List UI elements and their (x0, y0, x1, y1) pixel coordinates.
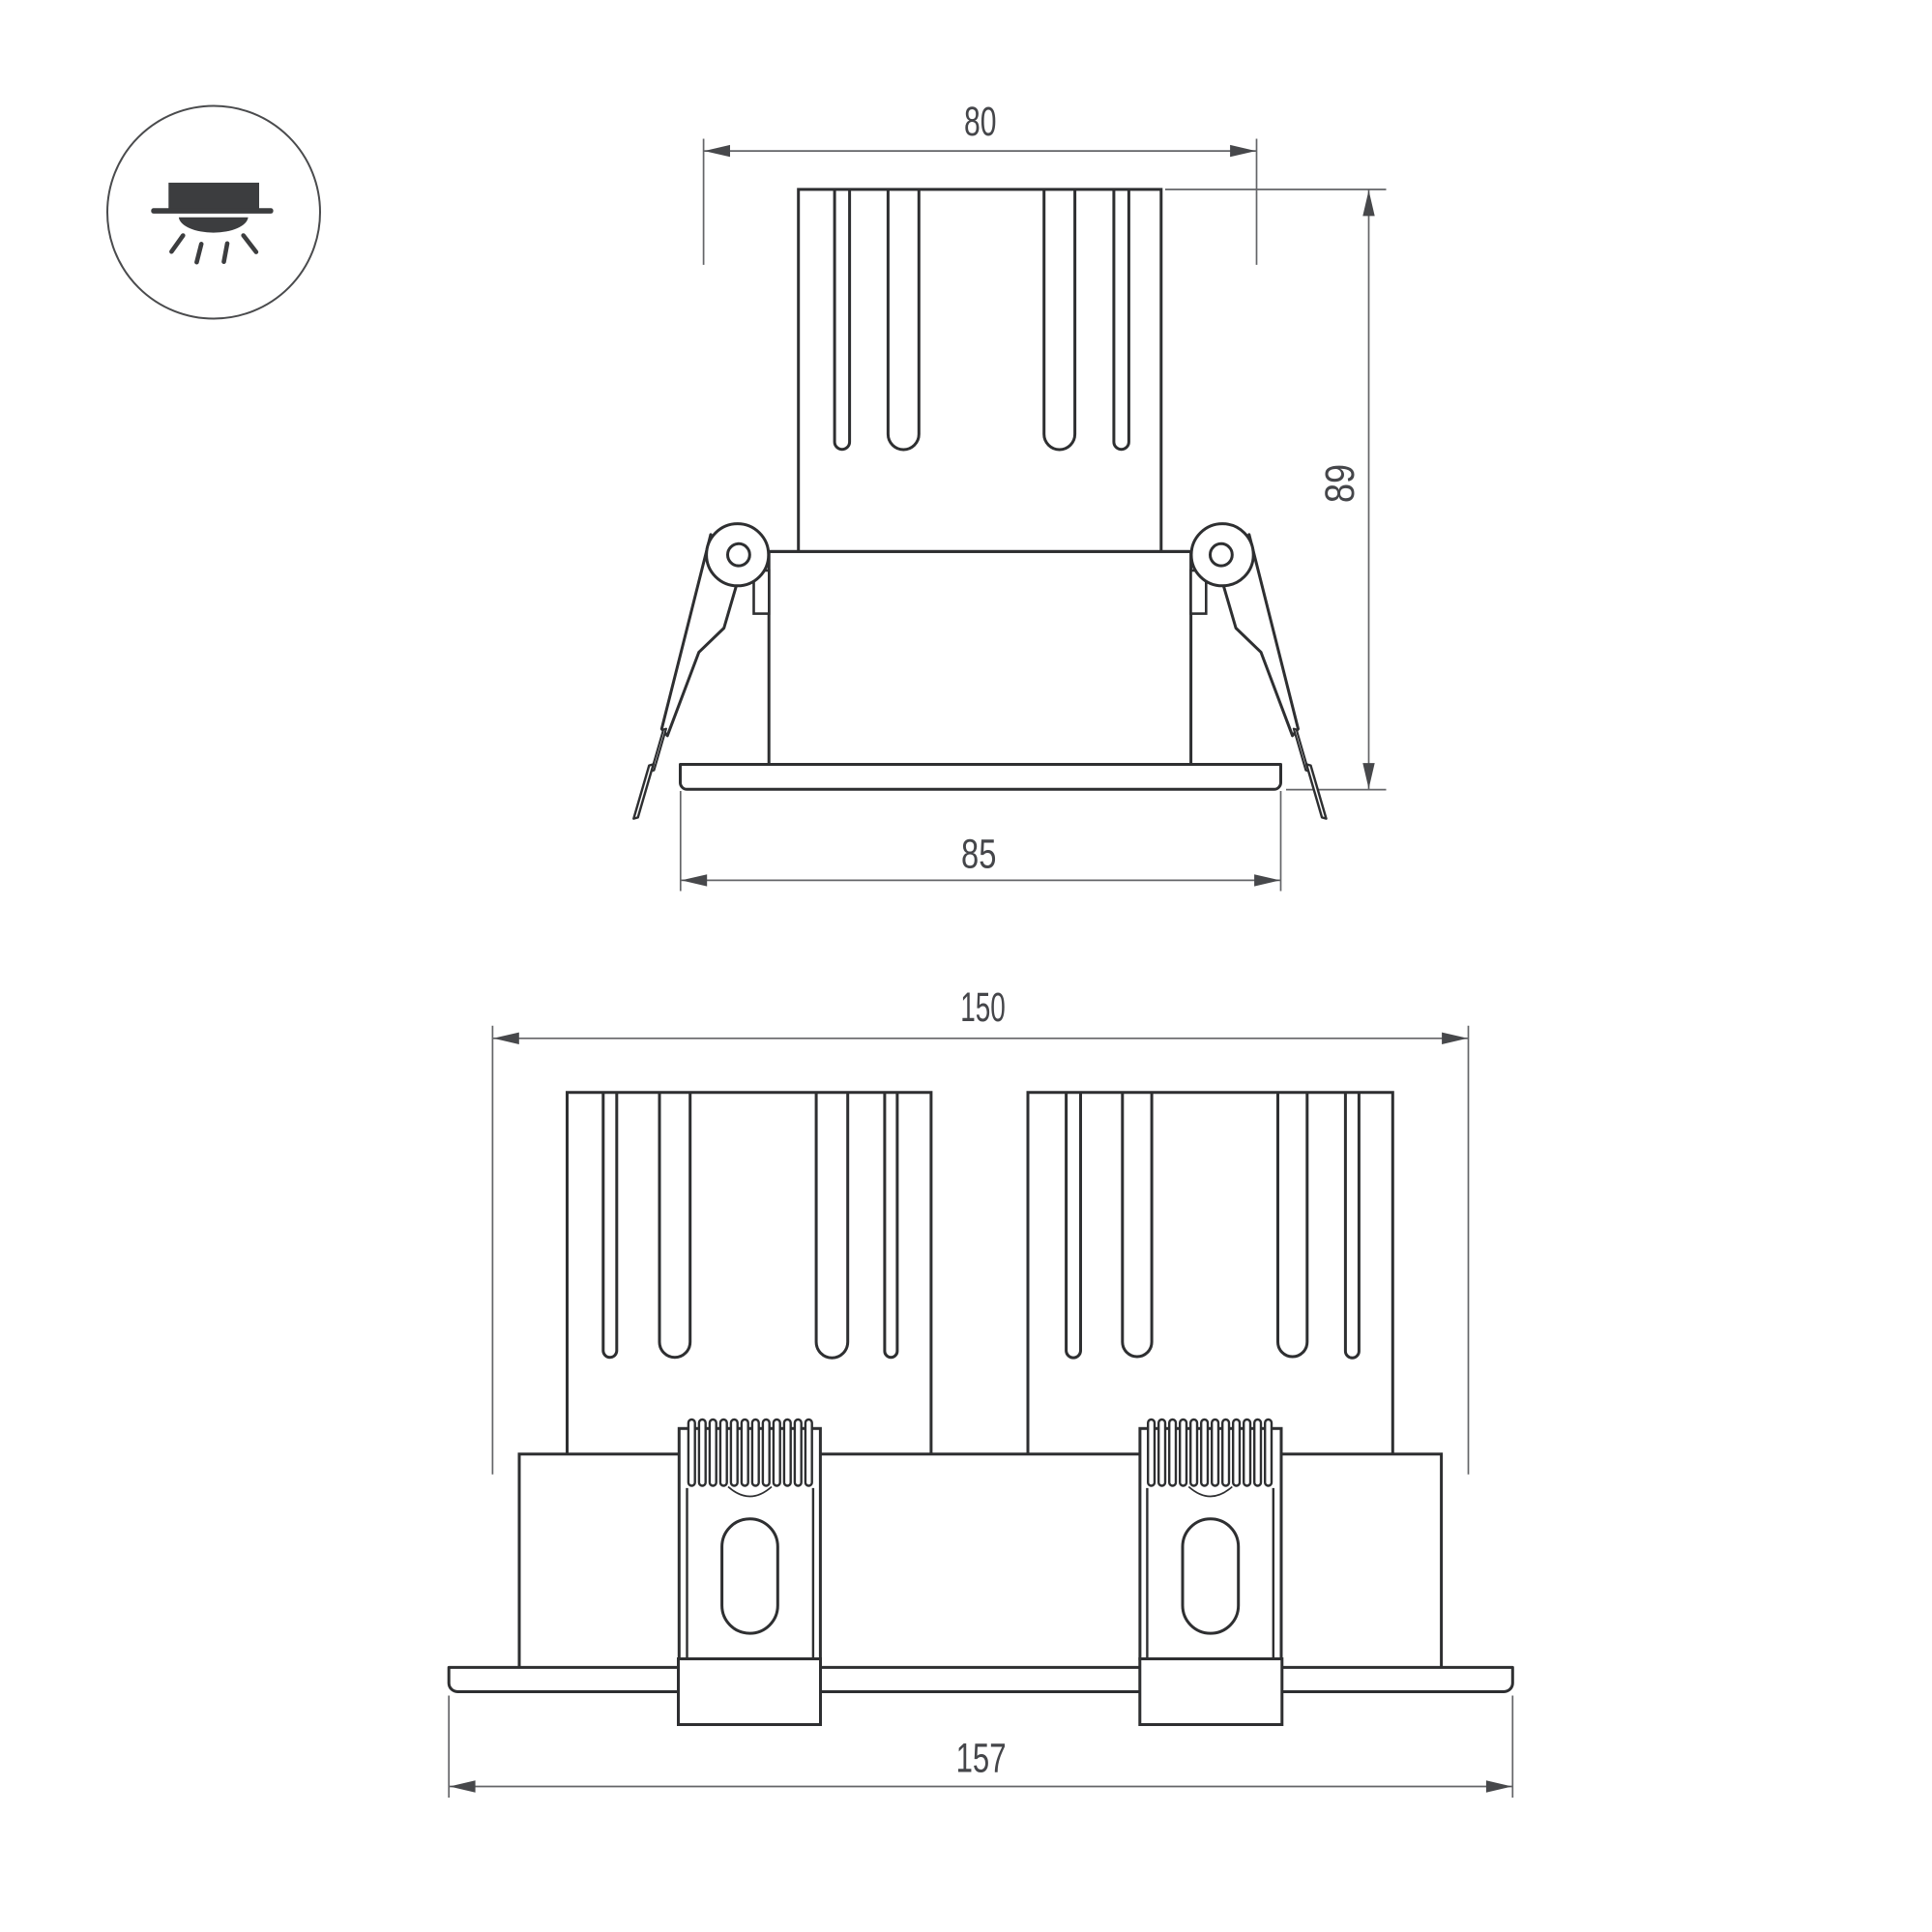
svg-text:157: 157 (956, 1735, 1007, 1781)
svg-text:85: 85 (961, 832, 996, 878)
svg-text:89: 89 (1317, 464, 1363, 503)
svg-text:80: 80 (964, 99, 997, 145)
svg-text:150: 150 (960, 984, 1006, 1031)
